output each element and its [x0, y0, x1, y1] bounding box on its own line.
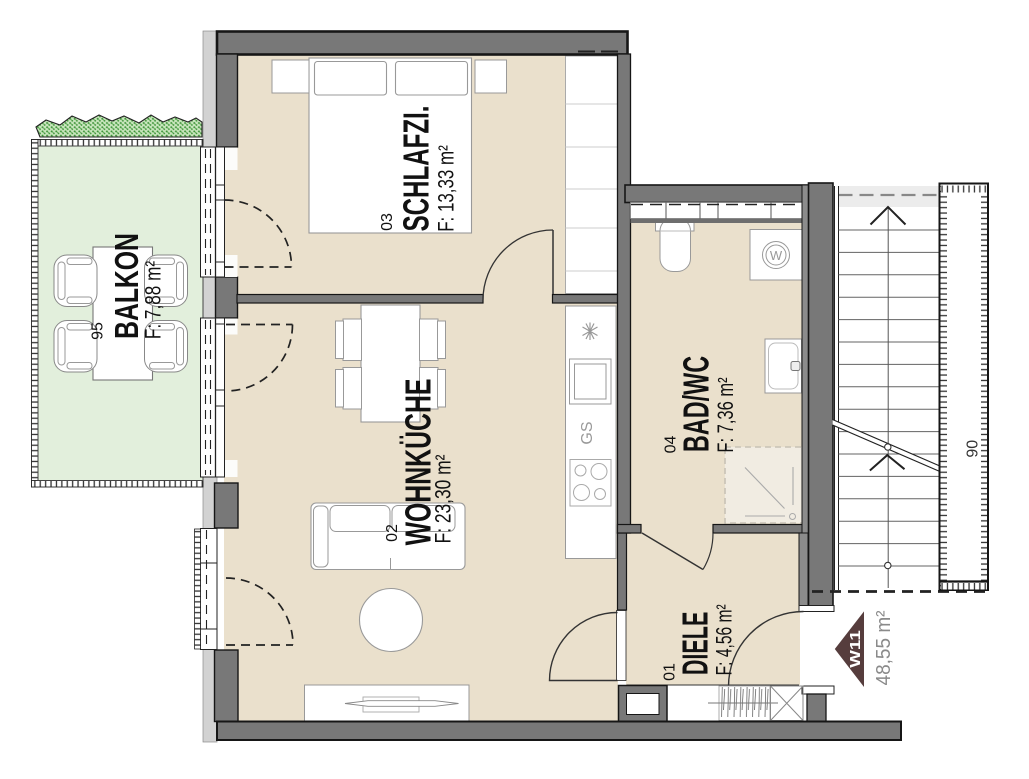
svg-text:F: 7,88 m²: F: 7,88 m² [142, 261, 167, 340]
svg-text:F: 13,33 m²: F: 13,33 m² [435, 145, 460, 232]
svg-text:03: 03 [379, 213, 396, 231]
svg-text:W: W [770, 248, 783, 263]
svg-text:GS: GS [579, 421, 596, 444]
svg-text:W11: W11 [847, 630, 864, 668]
svg-text:90: 90 [965, 440, 982, 458]
svg-text:01: 01 [662, 663, 679, 681]
svg-text:DIELE: DIELE [676, 612, 716, 676]
svg-text:95: 95 [90, 322, 107, 340]
svg-text:48,55 m²: 48,55 m² [873, 610, 896, 685]
svg-text:F: 23,30 m²: F: 23,30 m² [431, 454, 455, 543]
svg-text:BAD/WC: BAD/WC [677, 356, 716, 452]
svg-text:F: 4,56 m²: F: 4,56 m² [713, 604, 737, 675]
svg-text:BALKON: BALKON [110, 233, 146, 339]
svg-text:SCHLAFZI.: SCHLAFZI. [397, 106, 437, 232]
svg-text:02: 02 [384, 524, 401, 542]
svg-text:04: 04 [663, 436, 680, 454]
svg-text:F: 7,36 m²: F: 7,36 m² [714, 377, 739, 453]
